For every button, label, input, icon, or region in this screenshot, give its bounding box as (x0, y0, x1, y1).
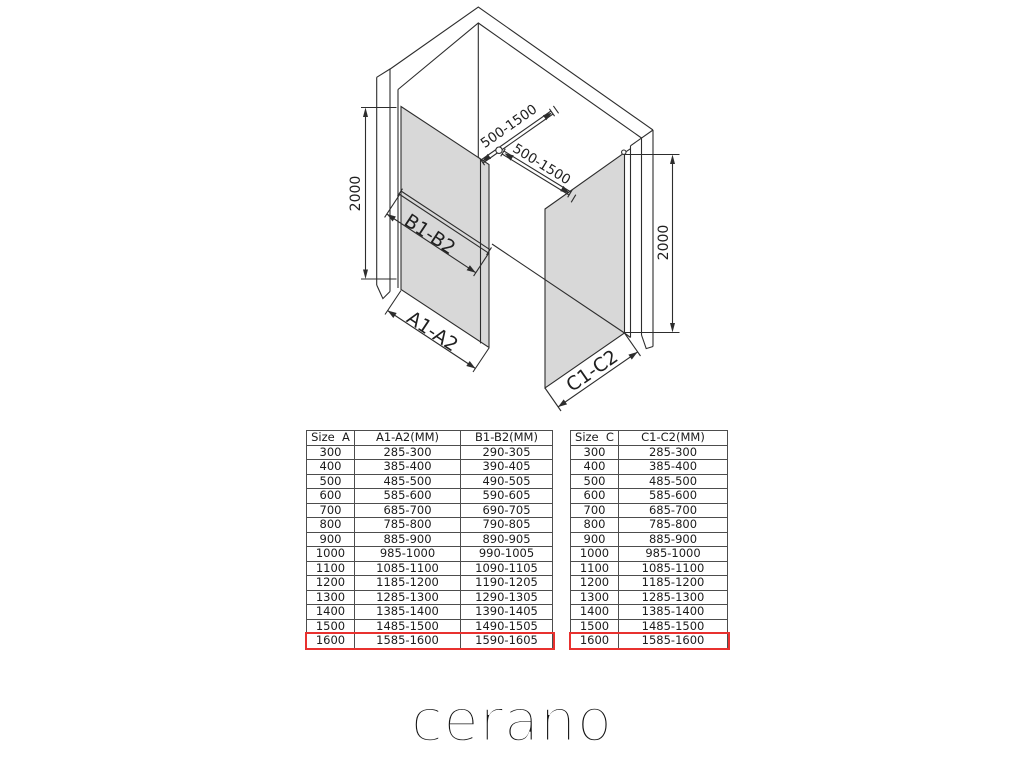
table-cell: 1400 (307, 605, 355, 620)
table-row: 11001085-11001090-1105 (307, 561, 553, 576)
table-header-row: Size CC1-C2(MM) (571, 431, 728, 446)
table-cell: 390-405 (461, 460, 553, 475)
table-cell: 1285-1300 (619, 590, 728, 605)
table-row: 900885-900890-905 (307, 532, 553, 547)
table-cell: 1100 (307, 561, 355, 576)
support-bar-right: 500-1500 (496, 141, 576, 203)
table-row: 12001185-12001190-1205 (307, 576, 553, 591)
table-cell: 600 (307, 489, 355, 504)
table-cell: 1585-1600 (355, 634, 461, 649)
table-cell: 900 (571, 532, 619, 547)
table-cell: 700 (307, 503, 355, 518)
table-row: 16001585-1600 (571, 634, 728, 649)
table-cell: 500 (307, 474, 355, 489)
table-cell: 1590-1605 (461, 634, 553, 649)
table-cell: 1400 (571, 605, 619, 620)
table-cell: 400 (307, 460, 355, 475)
table-row: 400385-400 (571, 460, 728, 475)
table-cell: 585-600 (355, 489, 461, 504)
table-row: 16001585-16001590-1605 (307, 634, 553, 649)
table-header-row: Size AA1-A2(MM)B1-B2(MM) (307, 431, 553, 446)
table-cell: 290-305 (461, 445, 553, 460)
table-cell: 385-400 (355, 460, 461, 475)
table-row: 600585-600590-605 (307, 489, 553, 504)
table-cell: 1385-1400 (619, 605, 728, 620)
table-row: 300285-300 (571, 445, 728, 460)
table-cell: 1290-1305 (461, 590, 553, 605)
table-cell: 385-400 (619, 460, 728, 475)
label-right-height: 2000 (656, 225, 672, 261)
table-cell: 485-500 (355, 474, 461, 489)
size-table-a: Size AA1-A2(MM)B1-B2(MM)300285-300290-30… (306, 430, 553, 649)
table-row: 500485-500 (571, 474, 728, 489)
table-row: 300285-300290-305 (307, 445, 553, 460)
table-cell: 1490-1505 (461, 619, 553, 634)
table-cell: 1600 (571, 634, 619, 649)
table-header-cell: B1-B2(MM) (461, 431, 553, 446)
table-cell: 885-900 (355, 532, 461, 547)
table-cell: 1485-1500 (355, 619, 461, 634)
table-cell: 685-700 (619, 503, 728, 518)
table-cell: 285-300 (619, 445, 728, 460)
table-row: 13001285-13001290-1305 (307, 590, 553, 605)
brand-logo: cerano (0, 690, 1024, 753)
table-row: 800785-800 (571, 518, 728, 533)
dimension-left-height: 2000 (348, 108, 397, 280)
table-row: 500485-500490-505 (307, 474, 553, 489)
table-row: 12001185-1200 (571, 576, 728, 591)
table-cell: 1000 (571, 547, 619, 562)
table-row: 700685-700690-705 (307, 503, 553, 518)
table-cell: 1085-1100 (619, 561, 728, 576)
table-cell: 300 (307, 445, 355, 460)
table-cell: 785-800 (619, 518, 728, 533)
table-cell: 985-1000 (355, 547, 461, 562)
table-cell: 1500 (307, 619, 355, 634)
table-cell: 600 (571, 489, 619, 504)
table-header-cell: A1-A2(MM) (355, 431, 461, 446)
table-row: 15001485-15001490-1505 (307, 619, 553, 634)
right-wall (631, 130, 654, 349)
table-row: 14001385-1400 (571, 605, 728, 620)
table-cell: 1200 (307, 576, 355, 591)
left-wall (377, 69, 398, 299)
table-cell: 1390-1405 (461, 605, 553, 620)
table-cell: 1500 (571, 619, 619, 634)
table-cell: 1200 (571, 576, 619, 591)
table-row: 11001085-1100 (571, 561, 728, 576)
label-left-height: 2000 (348, 176, 364, 212)
table-cell: 1190-1205 (461, 576, 553, 591)
table-cell: 585-600 (619, 489, 728, 504)
table-cell: 1285-1300 (355, 590, 461, 605)
table-header-cell: Size A (307, 431, 355, 446)
table-row: 800785-800790-805 (307, 518, 553, 533)
table-row: 600585-600 (571, 489, 728, 504)
table-cell: 1300 (307, 590, 355, 605)
table-row: 1000985-1000 (571, 547, 728, 562)
table-header-cell: Size C (571, 431, 619, 446)
shower-diagram: 500-1500 500-1500 B1-B2 A1-A2 (0, 0, 1024, 768)
table-cell: 1385-1400 (355, 605, 461, 620)
table-cell: 800 (307, 518, 355, 533)
table-cell: 490-505 (461, 474, 553, 489)
table-cell: 900 (307, 532, 355, 547)
table-cell: 700 (571, 503, 619, 518)
table-cell: 1185-1200 (619, 576, 728, 591)
table-cell: 990-1005 (461, 547, 553, 562)
table-cell: 1585-1600 (619, 634, 728, 649)
table-row: 1000985-1000990-1005 (307, 547, 553, 562)
table-row: 900885-900 (571, 532, 728, 547)
table-cell: 1100 (571, 561, 619, 576)
table-row: 15001485-1500 (571, 619, 728, 634)
table-cell: 1300 (571, 590, 619, 605)
table-cell: 890-905 (461, 532, 553, 547)
table-cell: 885-900 (619, 532, 728, 547)
table-cell: 1000 (307, 547, 355, 562)
table-cell: 1085-1100 (355, 561, 461, 576)
table-cell: 690-705 (461, 503, 553, 518)
table-cell: 590-605 (461, 489, 553, 504)
table-cell: 1485-1500 (619, 619, 728, 634)
table-cell: 500 (571, 474, 619, 489)
table-cell: 785-800 (355, 518, 461, 533)
table-header-cell: C1-C2(MM) (619, 431, 728, 446)
table-cell: 1185-1200 (355, 576, 461, 591)
size-table-c: Size CC1-C2(MM)300285-300400385-40050048… (570, 430, 728, 649)
table-cell: 285-300 (355, 445, 461, 460)
table-cell: 300 (571, 445, 619, 460)
table-cell: 790-805 (461, 518, 553, 533)
table-cell: 985-1000 (619, 547, 728, 562)
table-cell: 485-500 (619, 474, 728, 489)
table-cell: 1600 (307, 634, 355, 649)
table-cell: 800 (571, 518, 619, 533)
table-row: 400385-400390-405 (307, 460, 553, 475)
table-cell: 685-700 (355, 503, 461, 518)
table-row: 14001385-14001390-1405 (307, 605, 553, 620)
table-row: 700685-700 (571, 503, 728, 518)
table-row: 13001285-1300 (571, 590, 728, 605)
dimension-right-height: 2000 (625, 155, 680, 333)
table-cell: 400 (571, 460, 619, 475)
table-cell: 1090-1105 (461, 561, 553, 576)
